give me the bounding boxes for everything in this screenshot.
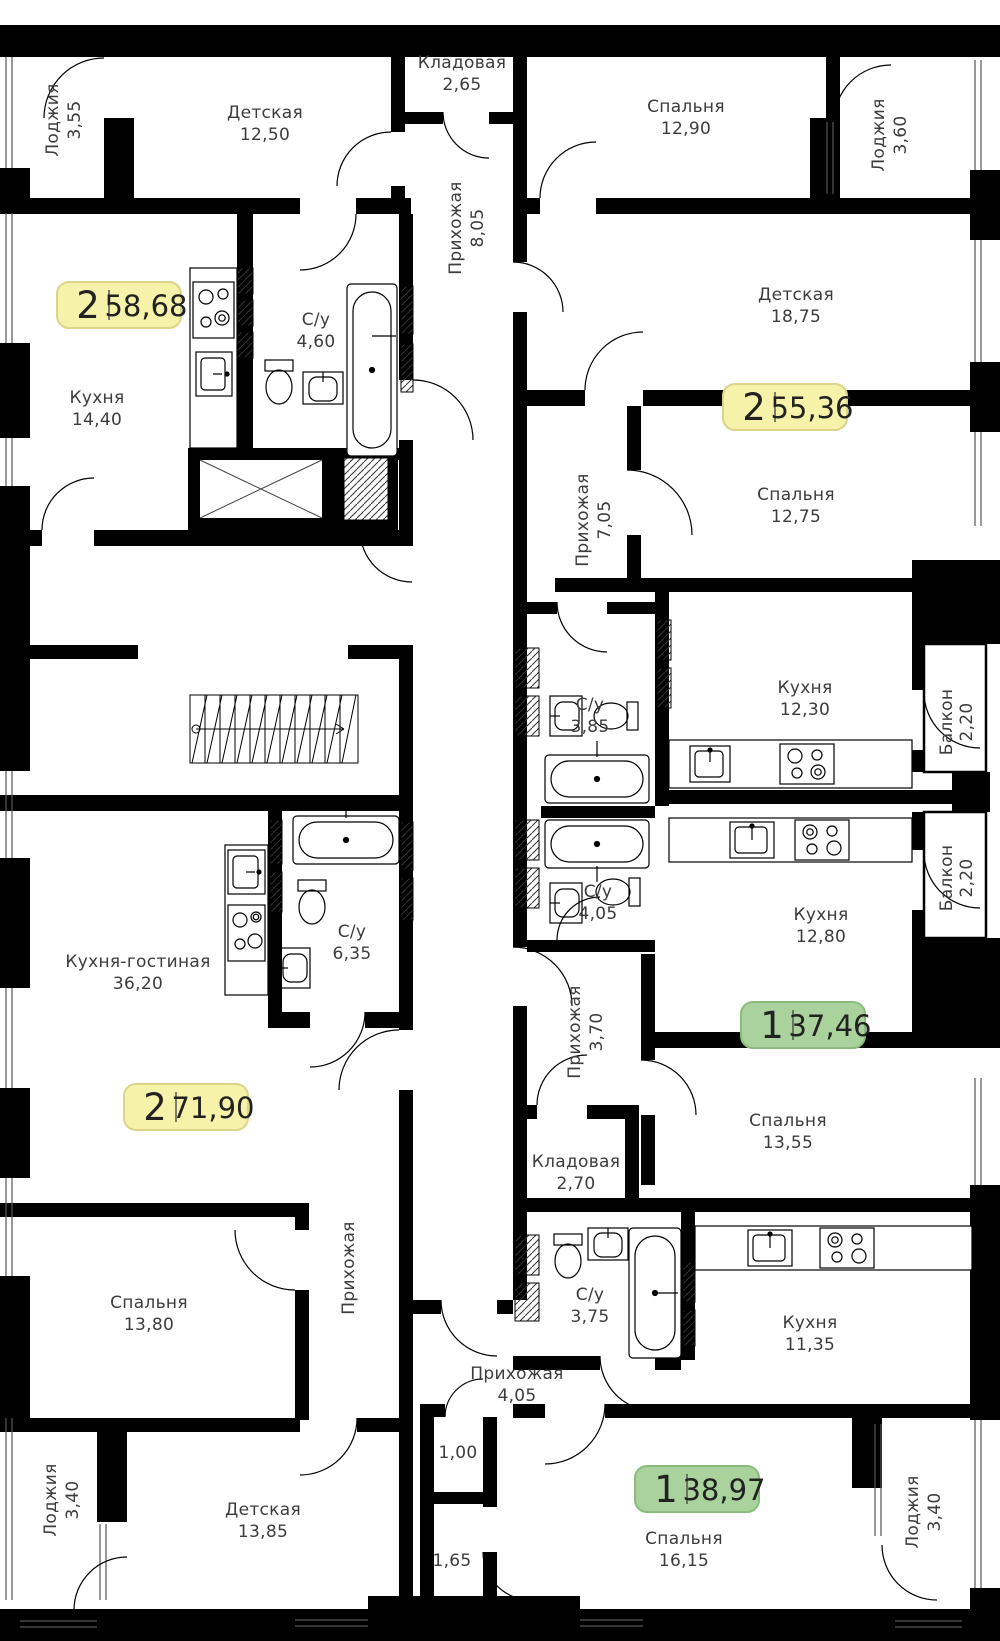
room-area: 6,35 xyxy=(332,944,371,964)
room-area: 13,80 xyxy=(124,1315,174,1335)
stove-icon xyxy=(820,1228,874,1268)
apartment-badges: 2 58,68 2 55,36 2 71,90 1 37,46 1 38,97 xyxy=(57,282,872,1512)
room-area: 2,20 xyxy=(957,702,977,741)
room-label: С/у xyxy=(576,695,605,715)
bathtub-icon xyxy=(545,741,649,803)
room-label: Кухня-гостиная xyxy=(65,952,210,972)
room-labels: Лоджия 3,55 Детская 12,50 Кладовая 2,65 … xyxy=(41,53,977,1571)
stove-icon xyxy=(193,282,234,338)
toilet-icon xyxy=(298,880,326,924)
room-label: Кухня xyxy=(793,905,848,925)
room-area: 1,65 xyxy=(432,1551,471,1571)
room-area: 16,15 xyxy=(659,1551,709,1571)
vent-shaft xyxy=(334,448,398,530)
room-label: Кухня xyxy=(69,388,124,408)
room-area: 12,30 xyxy=(780,700,830,720)
room-label: Прихожая xyxy=(573,473,593,566)
room-label: Прихожая xyxy=(470,1364,563,1384)
washbasin-icon xyxy=(278,948,310,988)
apartment-badge[interactable]: 1 38,97 xyxy=(635,1466,766,1512)
floor-plan: Лоджия 3,55 Детская 12,50 Кладовая 2,65 … xyxy=(0,0,1000,1641)
room-area: 3,60 xyxy=(891,115,911,154)
room-label: Балкон xyxy=(937,845,957,912)
svg-text:2: 2 xyxy=(76,284,100,327)
stove-icon xyxy=(228,905,265,961)
stairs xyxy=(190,695,358,763)
room-area: 2,65 xyxy=(442,75,481,95)
bathtub-icon xyxy=(629,1228,681,1358)
room-area: 4,05 xyxy=(497,1386,536,1406)
svg-text:1: 1 xyxy=(760,1004,784,1047)
room-area: 7,05 xyxy=(595,500,615,539)
room-area: 3,85 xyxy=(570,717,609,737)
room-area: 2,20 xyxy=(957,858,977,897)
room-label: Спальня xyxy=(757,485,835,505)
room-label: Спальня xyxy=(749,1111,827,1131)
room-area: 3,40 xyxy=(63,1480,83,1519)
room-area: 1,00 xyxy=(438,1443,477,1463)
room-label: Кладовая xyxy=(532,1152,621,1172)
room-area: 13,85 xyxy=(238,1522,288,1542)
room-label: Кухня xyxy=(782,1313,837,1333)
bathtub-icon xyxy=(347,284,397,456)
room-area: 12,80 xyxy=(796,927,846,947)
svg-text:1: 1 xyxy=(654,1468,678,1511)
room-area: 18,75 xyxy=(771,307,821,327)
room-area: 14,40 xyxy=(72,410,122,430)
room-label: Прихожая xyxy=(339,1221,359,1314)
svg-text:2: 2 xyxy=(742,386,766,429)
apartment-badge[interactable]: 2 58,68 xyxy=(57,282,188,328)
room-area: 3,40 xyxy=(925,1492,945,1531)
apartment-badge[interactable]: 1 37,46 xyxy=(741,1002,872,1048)
room-area: 3,55 xyxy=(65,100,85,139)
room-area: 8,05 xyxy=(468,208,488,247)
room-label: С/у xyxy=(576,1285,605,1305)
room-area: 13,55 xyxy=(763,1133,813,1153)
sink-icon xyxy=(228,850,265,894)
room-label: Детская xyxy=(225,1500,301,1520)
washbasin-icon xyxy=(588,1228,628,1260)
svg-text:37,46: 37,46 xyxy=(788,1009,871,1043)
room-label: С/у xyxy=(302,310,331,330)
room-label: Спальня xyxy=(110,1293,188,1313)
room-label: Прихожая xyxy=(446,181,466,274)
stove-icon xyxy=(795,820,849,860)
room-label: Кухня xyxy=(777,678,832,698)
room-label: Лоджия xyxy=(41,1463,61,1536)
washbasin-icon xyxy=(303,372,343,404)
toilet-icon xyxy=(265,360,293,404)
svg-text:2: 2 xyxy=(143,1086,167,1129)
room-area: 4,05 xyxy=(578,904,617,924)
room-label: Балкон xyxy=(937,689,957,756)
sink-icon xyxy=(730,822,774,858)
room-label: Прихожая xyxy=(565,985,585,1078)
bathtub-icon xyxy=(545,820,649,882)
room-label: Кладовая xyxy=(418,53,507,73)
room-area: 2,70 xyxy=(556,1174,595,1194)
room-area: 12,90 xyxy=(661,119,711,139)
svg-text:58,68: 58,68 xyxy=(104,289,187,323)
room-area: 11,35 xyxy=(785,1335,835,1355)
room-label: Лоджия xyxy=(43,83,63,156)
toilet-icon xyxy=(554,1234,582,1278)
stove-icon xyxy=(780,744,834,784)
sink-icon xyxy=(748,1230,792,1266)
svg-text:55,36: 55,36 xyxy=(770,391,853,425)
svg-text:71,90: 71,90 xyxy=(171,1091,254,1125)
room-label: Лоджия xyxy=(869,98,889,171)
room-label: С/у xyxy=(338,922,367,942)
room-label: Детская xyxy=(227,103,303,123)
room-area: 12,75 xyxy=(771,507,821,527)
room-label: Спальня xyxy=(645,1529,723,1549)
room-label: Лоджия xyxy=(903,1475,923,1548)
room-label: Детская xyxy=(758,285,834,305)
room-area: 36,20 xyxy=(113,974,163,994)
room-area: 12,50 xyxy=(240,125,290,145)
elevator-shaft xyxy=(188,448,334,530)
sink-icon xyxy=(196,352,232,396)
room-label: Спальня xyxy=(647,97,725,117)
sink-icon xyxy=(690,746,730,782)
room-area: 3,75 xyxy=(570,1307,609,1327)
room-area: 4,60 xyxy=(296,332,335,352)
apartment-badge[interactable]: 2 55,36 xyxy=(723,384,854,430)
svg-text:38,97: 38,97 xyxy=(682,1473,765,1507)
apartment-badge[interactable]: 2 71,90 xyxy=(124,1084,255,1130)
room-label: С/у xyxy=(584,882,613,902)
room-area: 3,70 xyxy=(587,1012,607,1051)
kitchen-counter xyxy=(669,818,912,862)
